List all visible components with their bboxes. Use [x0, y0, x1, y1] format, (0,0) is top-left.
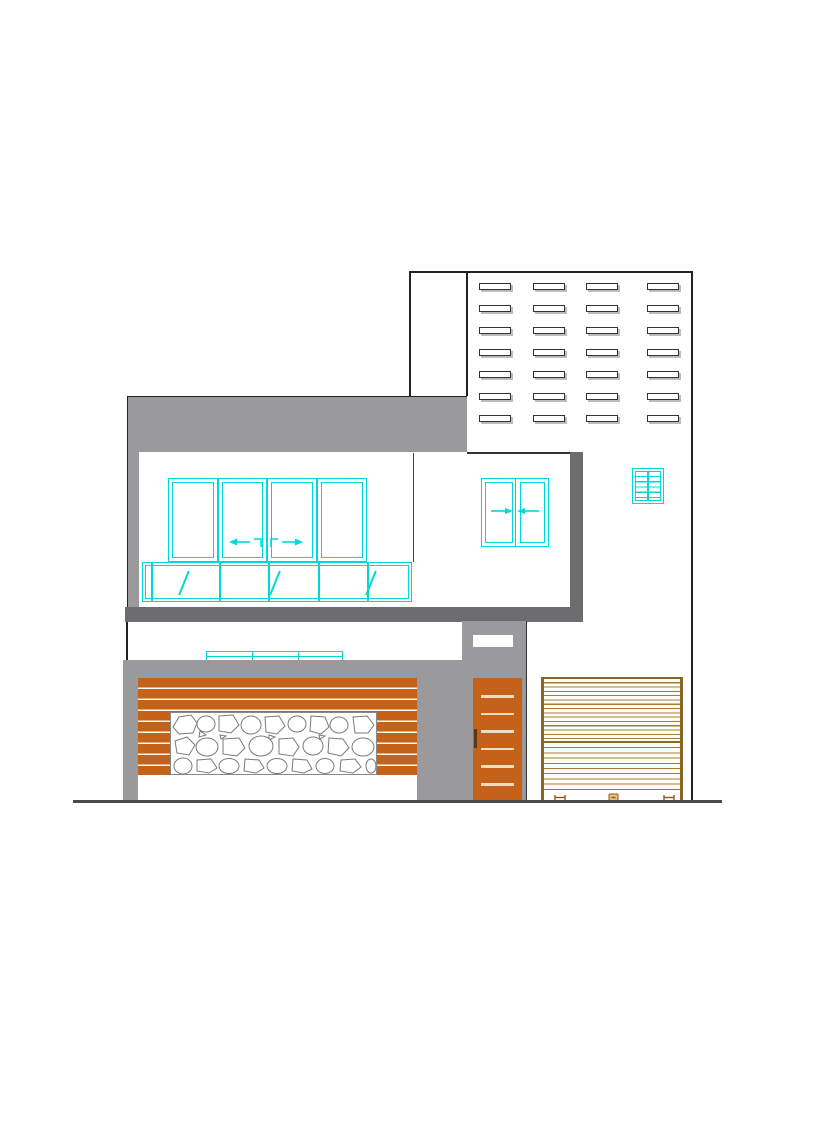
window-inner-line	[207, 656, 342, 657]
first-floor-top-line	[467, 452, 570, 454]
vent-slot	[533, 371, 565, 378]
vent-slot	[586, 349, 618, 356]
shutter-slats-upper	[544, 679, 680, 741]
stone-cladding-panel	[170, 712, 377, 775]
main-door	[473, 678, 522, 800]
vent-slot	[479, 415, 511, 422]
ground-floor-left-edge-line	[126, 622, 128, 660]
door-stripe	[481, 695, 514, 698]
balcony-wall-line	[413, 453, 414, 562]
vent-slot	[647, 283, 679, 290]
floor-slab	[125, 607, 583, 622]
letterbox-slot	[473, 635, 513, 647]
window-panel	[267, 478, 317, 562]
band-mullion	[367, 563, 369, 601]
band-mullion	[318, 563, 320, 601]
door-handle	[474, 729, 477, 748]
pillar-right-edge-line	[526, 621, 528, 800]
vent-slot	[479, 393, 511, 400]
rolling-shutter	[541, 677, 683, 803]
vent-slot	[647, 393, 679, 400]
window-panel	[168, 478, 218, 562]
vent-slot	[479, 305, 511, 312]
vent-slot	[586, 283, 618, 290]
vent-slot	[533, 327, 565, 334]
vent-slot	[533, 283, 565, 290]
first-floor-left-pier	[127, 452, 139, 607]
vent-slot	[479, 349, 511, 356]
door-stripe	[481, 730, 514, 733]
ground-line	[73, 800, 722, 803]
door-stripe	[481, 783, 514, 786]
main-sliding-window	[168, 478, 367, 562]
window-panel	[317, 478, 367, 562]
vent-slot	[647, 371, 679, 378]
door-stripe	[481, 765, 514, 768]
louver-panel	[635, 471, 648, 501]
door-stripe	[481, 748, 514, 751]
door-stripe	[481, 713, 514, 716]
stone-pattern	[171, 713, 376, 774]
vent-slot	[533, 349, 565, 356]
elevation-drawing	[0, 0, 828, 1141]
shutter-slats-lower	[544, 743, 680, 792]
vent-slot	[586, 305, 618, 312]
vent-slot	[586, 415, 618, 422]
sliding-direction-arrows	[489, 506, 541, 516]
vent-slot	[479, 327, 511, 334]
vent-slot	[647, 327, 679, 334]
vent-slot	[586, 393, 618, 400]
window-glass	[172, 482, 214, 558]
louver-panel	[648, 471, 661, 501]
sliding-direction-arrows	[228, 535, 304, 549]
window-lower-band	[142, 562, 412, 602]
vent-slot	[647, 305, 679, 312]
parapet-band	[127, 396, 467, 452]
band-mullion	[151, 563, 153, 601]
vent-slot	[533, 393, 565, 400]
window-panel	[218, 478, 267, 562]
louver-window	[632, 468, 664, 504]
vent-slot	[479, 283, 511, 290]
vent-slot	[647, 349, 679, 356]
window-glass	[321, 482, 363, 558]
tower-left-edge	[409, 271, 411, 396]
jali-vent-grid	[467, 271, 693, 431]
vent-slot	[533, 305, 565, 312]
vent-slot	[586, 371, 618, 378]
first-floor-right-pier	[570, 452, 583, 607]
vent-slot	[647, 415, 679, 422]
vent-slot	[533, 415, 565, 422]
vent-slot	[586, 327, 618, 334]
vent-slot	[479, 371, 511, 378]
band-mullion	[219, 563, 221, 601]
band-mullion	[268, 563, 270, 601]
